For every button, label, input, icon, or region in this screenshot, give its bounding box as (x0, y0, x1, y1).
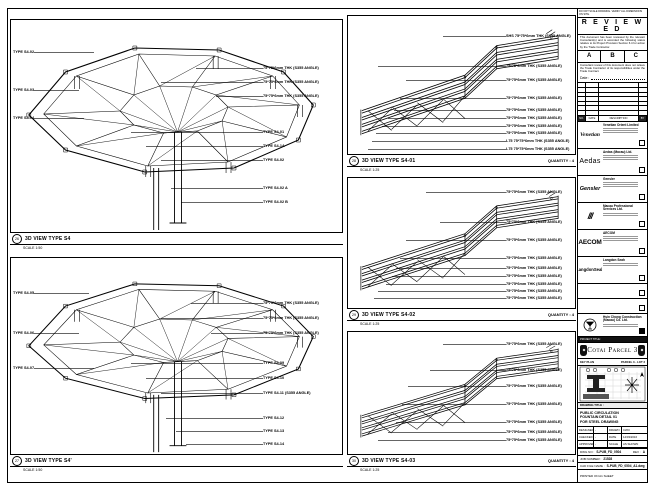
stamp-checkbox (639, 167, 645, 173)
beam-label: TYPE S4-06 (13, 331, 79, 335)
beam-label: 75*75*6mm THK (S355 ANGLE) (392, 274, 562, 278)
detail-bubble: 29 (349, 310, 359, 320)
status-b: B (601, 51, 624, 62)
panel-3d-view-type-s4-prime: TYPE S4-05 TYPE S4-06 TYPE S4-07 75*75*6… (10, 257, 343, 472)
view-scale: SCALE 1:50 (10, 467, 343, 472)
date-fill-line (591, 75, 645, 80)
reviewed-paragraph: This document has been reviewed by the r… (580, 36, 645, 49)
key-plan-parcel: PARCEL 3 - LOT 2 (621, 360, 645, 364)
sheet-note: DO NOT SCALE DRAWING. VERIFY ALL DIMENSI… (578, 9, 647, 18)
consultant-row-venetian: Venetian Venetian Orient Limited (578, 122, 647, 149)
beam-label: 75*75*6mm THK (S355 ANGLE) (378, 64, 562, 68)
beam-label: 75*75*6mm THK (S355 ANGLE) (376, 131, 562, 135)
rev-value: A (643, 450, 645, 454)
stamp-checkbox (639, 248, 645, 254)
view-title: 3D VIEW TYPE S4-01 (362, 158, 415, 164)
address-lines (603, 182, 646, 187)
umbrella-structure-drawing (11, 258, 342, 454)
view-scale: SCALE 1:25 (347, 167, 576, 172)
panel-3d-view-type-s4: TYPE S4-02 TYPE S4-03 TYPE S4-04 75*75*6… (10, 19, 343, 250)
key-plan-map (578, 366, 647, 402)
hsin-chong-logo (578, 314, 602, 336)
stamp-checkbox (639, 328, 645, 334)
address-lines (603, 128, 646, 133)
address-lines (603, 324, 646, 327)
drawing-sheet: TYPE S4-02 TYPE S4-03 TYPE S4-04 75*75*6… (7, 8, 648, 483)
status-a: A (578, 51, 601, 62)
stamp-checkbox (639, 221, 645, 227)
langdon-seah-logo: LangdonSeah (578, 257, 602, 283)
aecom-logo: AECOM (578, 230, 602, 256)
beam-label: 75*75*6mm THK (S355 ANGLE) (378, 289, 562, 293)
beam-label: TYPE S4-07 (13, 366, 94, 370)
view-s4-03-drawing: 75*75*6mm THK (S355 ANGLE) 75*75*6mm THK… (347, 331, 576, 455)
stamp-checkbox (639, 290, 645, 296)
beam-label: 75*75*6mm THK (S355 ANGLE) (443, 342, 562, 346)
address-lines (603, 213, 646, 216)
address-lines (603, 263, 646, 266)
reviewed-date-line: Date : (578, 74, 647, 82)
beam-label: 75*75*6mm THK (S355 ANGLE) (386, 282, 562, 286)
beam-label: TYPE S4-12 (166, 416, 284, 420)
contractor-row-hsin-chong: Hsin Chong Construction (Macau) Co. Ltd. (578, 314, 647, 337)
panel-3d-view-type-s4-01: SHS 75*75*6mm THK (S355 ANGLE) 75*75*6mm… (347, 15, 576, 172)
dwg-no: S-PUB_FD_0504 (596, 450, 621, 454)
beam-label: TYPE S4-01 (131, 130, 284, 134)
address-lines (603, 236, 646, 241)
view-title: 3D VIEW TYPE S4-03 (362, 458, 415, 464)
beam-label: TYPE S4-14 (186, 442, 284, 446)
beam-label: 75*75*6mm THK (S355 ANGLE) (161, 80, 319, 84)
project-title: Cotai Parcel 3 (587, 346, 638, 354)
beam-label: TYPE S4-04 (13, 116, 84, 120)
panel-3d-view-type-s4-03: 75*75*6mm THK (S355 ANGLE) 75*75*6mm THK… (347, 331, 576, 472)
beam-label: TYPE S4-13 (176, 429, 284, 433)
beam-label: L75 75*75*6mm THK (S355 ANGLE) (372, 139, 569, 143)
detail-bubble: 30 (349, 456, 359, 466)
quantity-note: QUANTITY : 4 (548, 458, 574, 463)
beam-assembly-drawing (348, 332, 575, 454)
beam-label: 75*75*6mm THK (S355 ANGLE) (394, 108, 562, 112)
beam-label: 75*75*6mm THK (S355 ANGLE) (402, 402, 562, 406)
revision-table: NO. DATE DESCRIPTION BY (578, 83, 647, 121)
beam-label: TYPE S4-02 B (181, 200, 288, 204)
venetian-logo: Venetian (578, 122, 602, 148)
view-scale: SCALE 1:50 (10, 245, 343, 250)
view-s4-01-drawing: SHS 75*75*6mm THK (S355 ANGLE) 75*75*6mm… (347, 15, 576, 155)
view-title: 3D VIEW TYPE S4 (25, 236, 71, 242)
beam-label: 75*75*6mm THK (S355 ANGLE) (388, 116, 562, 120)
beam-label: 75*75*6mm THK (S355 ANGLE) (196, 66, 319, 70)
beam-label: 75*75*6mm THK (S355 ANGLE) (211, 331, 319, 335)
panel-3d-view-type-s4-02: 75*75*6mm THK (S355 ANGLE) 75*75*6mm THK… (347, 177, 576, 326)
quantity-note: QUANTITY : 4 (548, 158, 574, 163)
beam-label: TYPE S4-02 (161, 158, 284, 162)
beam-label: 75*75*6mm THK (S355 ANGLE) (408, 384, 562, 388)
view-caption: 30 3D VIEW TYPE S4-03 QUANTITY : 4 (347, 455, 576, 467)
beam-label: TYPE S4-02 A (171, 186, 288, 190)
job-number-row: JOB NUMBER :21528 (578, 456, 647, 463)
key-plan-label: KEY PLAN (580, 360, 594, 364)
detail-bubble: 26 (12, 234, 22, 244)
consultant-row-empty (578, 299, 647, 314)
beam-label: TYPE S4-05 (13, 291, 89, 295)
crest-icon (580, 345, 587, 356)
beam-label: L75 75*75*6mm THK (S355 ANGLE) (368, 147, 569, 151)
view-title: 3D VIEW TYPE S4-02 (362, 312, 415, 318)
reviewed-stamp: R E V I E W E D This document has been r… (578, 18, 647, 83)
signoff-table: DESIGNED- DRAWNCWO CHECKED- DATE14/03/20… (578, 427, 647, 449)
beam-label: 75*75*6mm THK (S355 ANGLE) (426, 190, 562, 194)
beam-label: 75*75*6mm THK (S355 ANGLE) (374, 296, 562, 300)
beam-label: 75*75*6mm THK (S355 ANGLE) (406, 78, 562, 82)
address-lines (603, 155, 646, 160)
beam-label: 75*75*6mm THK (S355 ANGLE) (406, 238, 562, 242)
consultant-row-aedas: Aedas Aedas (Macau) Ltd. (578, 149, 647, 176)
stamp-checkbox (639, 140, 645, 146)
cad-file-row: CAD FILE NAME :S-PUB_FD_0504_A1.dwg (578, 463, 647, 470)
reviewed-title: R E V I E W E D (578, 18, 647, 35)
beam-label: 75*75*6mm THK (S355 ANGLE) (396, 266, 562, 270)
beam-label: TYPE S4-03 (13, 88, 79, 92)
dwg-no-row: DWG NO :S-PUB_FD_0504 REV :A (578, 449, 647, 456)
drawing-title: PUBLIC CIRCULATION FOUNTAIN DETAIL 01 FO… (578, 409, 647, 428)
consultant-row-langdon-seah: LangdonSeah Langdon Seah (578, 257, 647, 284)
beam-label: 75*75*6mm THK (S355 ANGLE) (400, 256, 562, 260)
consultant-row-aecom: AECOM AECOM (578, 230, 647, 257)
gensler-logo: Gensler (578, 176, 602, 202)
view-caption: 26 3D VIEW TYPE S4 (10, 233, 343, 245)
view-scale: SCALE 1:25 (347, 467, 576, 472)
beam-label: SHS 75*75*6mm THK (S355 ANGLE) (443, 34, 571, 38)
project-banner: Cotai Parcel 3 (578, 343, 647, 359)
beam-label: 75*75*6mm THK (S355 ANGLE) (216, 94, 319, 98)
beam-label: 75*75*6mm THK (S355 ANGLE) (440, 220, 562, 224)
view-3d-type-s4-drawing: TYPE S4-02 TYPE S4-03 TYPE S4-04 75*75*6… (10, 19, 343, 233)
title-block: DO NOT SCALE DRAWING. VERIFY ALL DIMENSI… (577, 9, 647, 482)
view-caption: 29 3D VIEW TYPE S4-02 QUANTITY : 4 (347, 309, 576, 321)
consultant-row-empty (578, 284, 647, 299)
detail-bubble: 28 (349, 156, 359, 166)
print-row: PRINTED ON A1 SHEET (578, 470, 647, 482)
stamp-checkbox (639, 275, 645, 281)
beam-label: 75*75*6mm THK (S355 ANGLE) (388, 430, 562, 434)
view-s4-02-drawing: 75*75*6mm THK (S355 ANGLE) 75*75*6mm THK… (347, 177, 576, 309)
beam-label: 75*75*6mm THK (S355 ANGLE) (378, 438, 562, 442)
beam-label: TYPE S4-09 (131, 361, 284, 365)
reviewed-disclaimer: Consultant review of this document does … (580, 64, 645, 74)
beam-label: 75*75*6mm THK (S355 ANGLE) (161, 316, 319, 320)
key-plan: KEY PLAN PARCEL 3 - LOT 2 (578, 359, 647, 403)
beam-label: TYPE S4-1A (146, 144, 285, 148)
beam-label: 75*75*6mm THK (S355 ANGLE) (382, 124, 562, 128)
detail-bubble: 27 (12, 456, 22, 466)
beam-label: 75*75*6mm THK (S355 ANGLE) (400, 96, 562, 100)
consultant-row-gensler: Gensler Gensler (578, 176, 647, 203)
beam-label: 75*75*6mm THK (S355 ANGLE) (191, 301, 319, 305)
view-3d-type-s4-prime-drawing: TYPE S4-05 TYPE S4-06 TYPE S4-07 75*75*6… (10, 257, 343, 455)
view-scale: SCALE 1:25 (347, 321, 576, 326)
beam-label: 75*75*6mm THK (S355 ANGLE) (396, 420, 562, 424)
mps-logo: /// (578, 203, 602, 229)
beam-label: TYPE S4-02 (13, 50, 94, 54)
crest-icon (638, 345, 645, 356)
aedas-logo: Aedas (578, 149, 602, 175)
stamp-checkbox (639, 194, 645, 200)
beam-label: TYPE S4-11 (S355 ANGLE) (161, 391, 311, 395)
revision-table-header: NO. DATE DESCRIPTION BY (578, 116, 647, 121)
beam-label: 75*75*6mm THK (S355 ANGLE) (430, 368, 562, 372)
beam-label: TYPE S4-10 (146, 376, 284, 380)
view-title: 3D VIEW TYPE S4' (25, 458, 72, 464)
reviewed-status-columns: A B C (578, 50, 647, 63)
quantity-note: QUANTITY : 4 (548, 312, 574, 317)
status-c: C (625, 51, 647, 62)
stamp-checkbox (639, 305, 645, 311)
view-caption: 27 3D VIEW TYPE S4' (10, 455, 343, 467)
consultant-row-mps: /// Macau Professional Services Ltd. (578, 203, 647, 230)
view-caption: 28 3D VIEW TYPE S4-01 QUANTITY : 4 (347, 155, 576, 167)
